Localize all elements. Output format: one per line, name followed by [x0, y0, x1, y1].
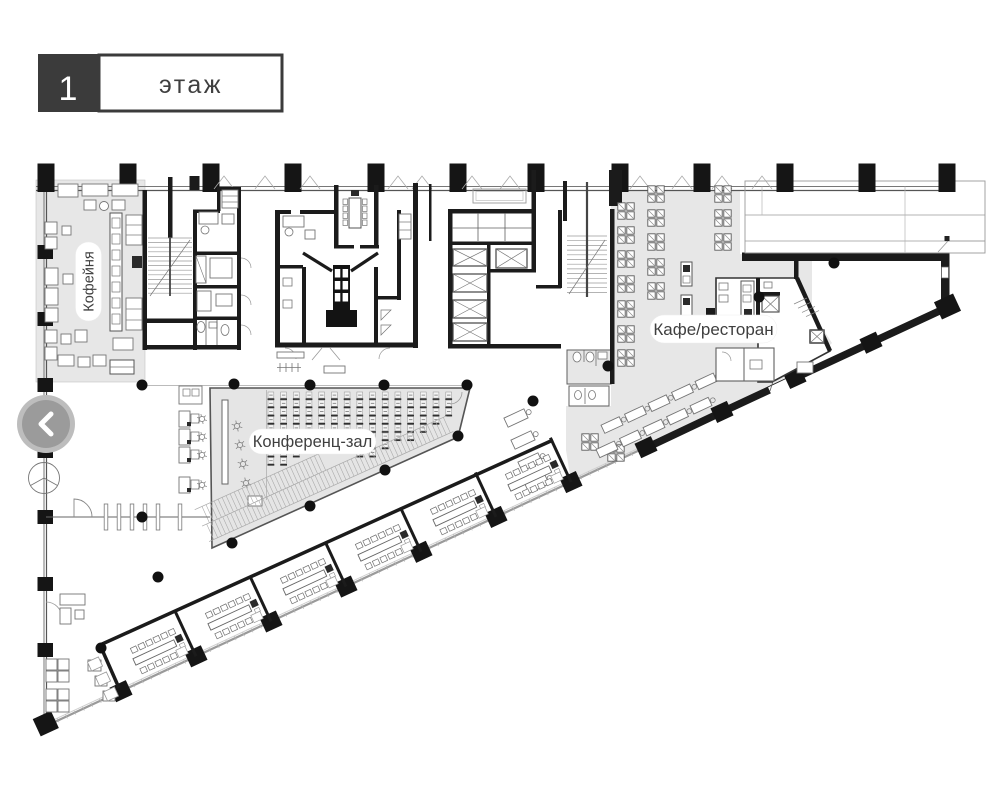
svg-text:этаж: этаж — [159, 71, 223, 99]
svg-text:Конференц-зал: Конференц-зал — [253, 433, 372, 451]
svg-text:Кофейня: Кофейня — [82, 251, 98, 311]
svg-text:1: 1 — [59, 70, 78, 108]
svg-text:Кафе/ресторан: Кафе/ресторан — [653, 320, 773, 339]
